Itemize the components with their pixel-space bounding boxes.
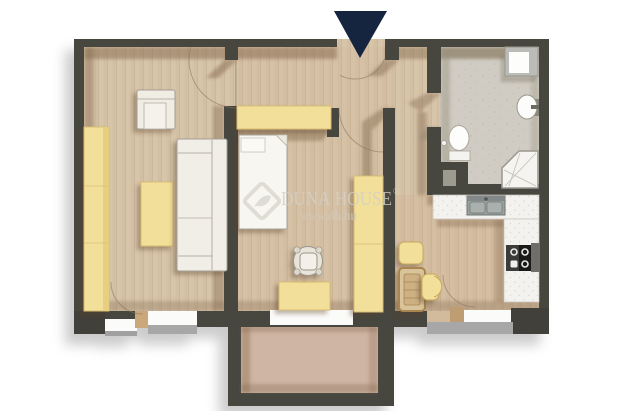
svg-text:DUNA HOUSE: DUNA HOUSE — [281, 188, 392, 210]
svg-text:®: ® — [393, 186, 400, 196]
svg-text:www.dh.hu: www.dh.hu — [300, 208, 357, 223]
